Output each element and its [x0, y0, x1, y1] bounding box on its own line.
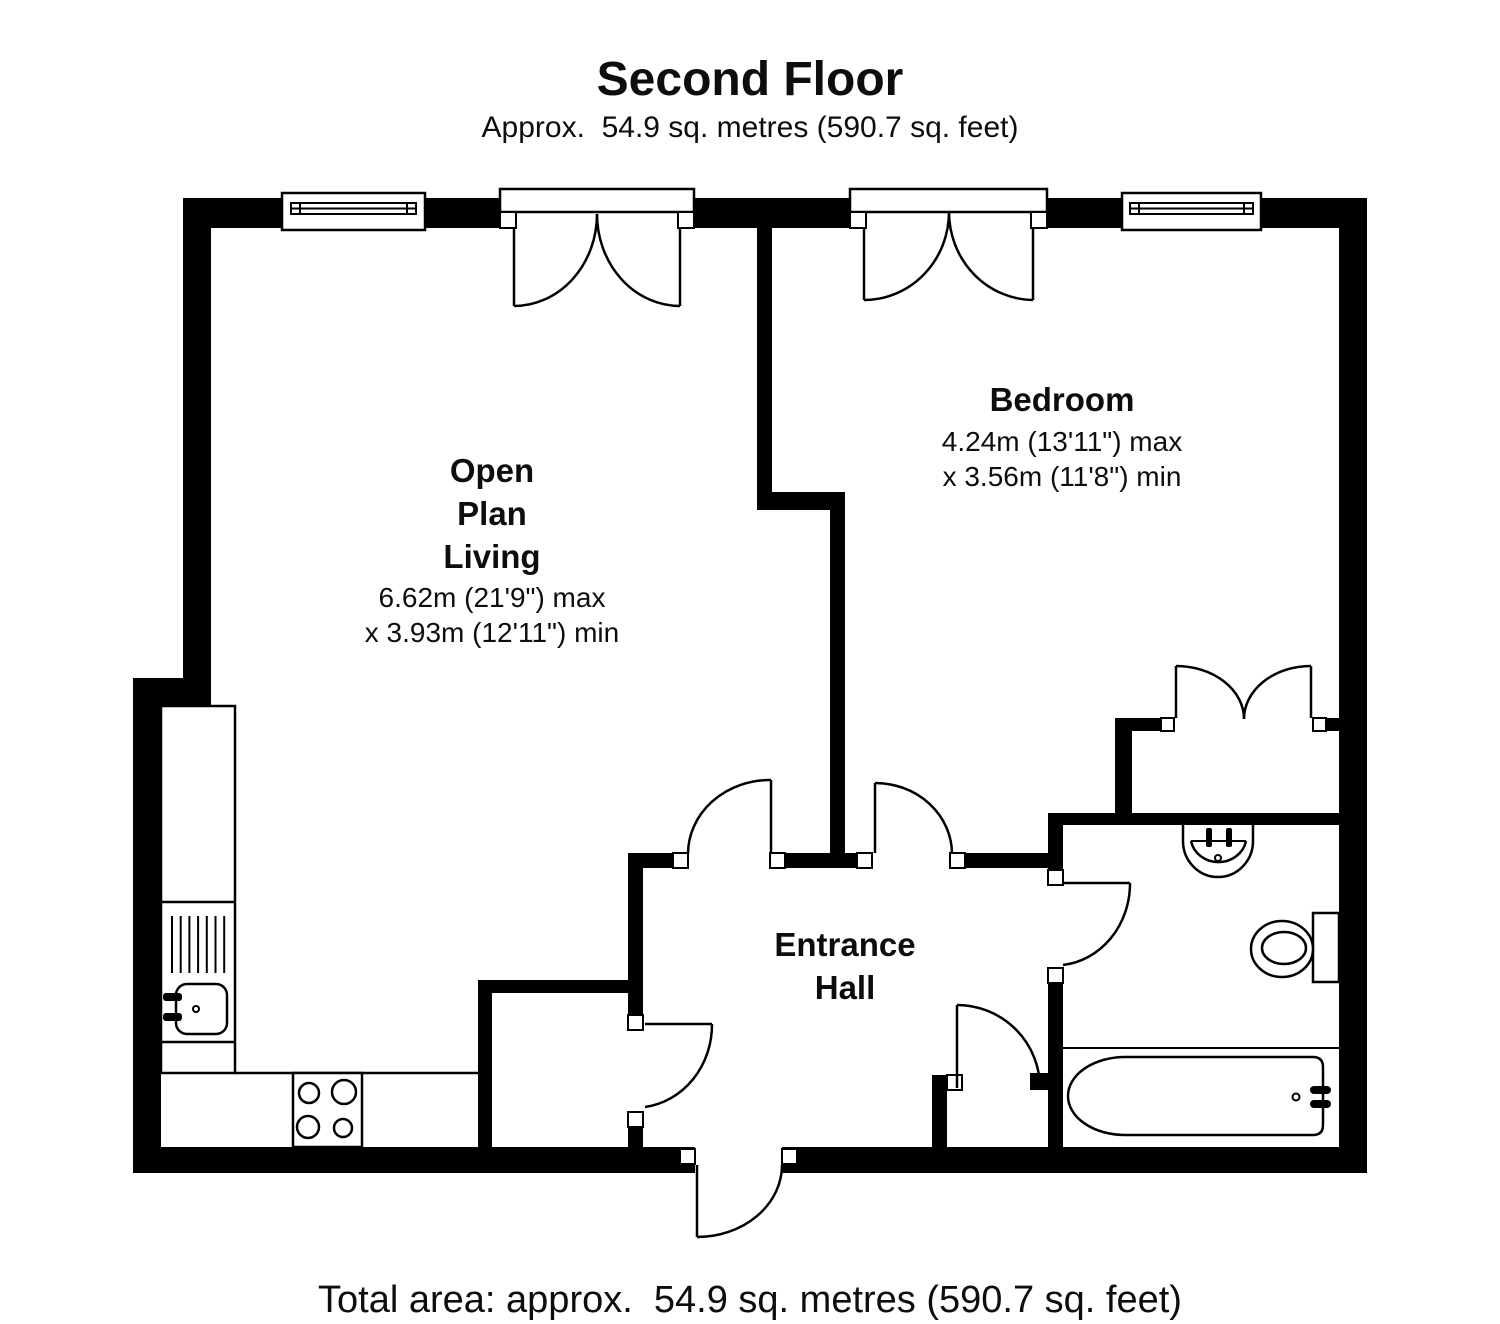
toilet — [1251, 913, 1339, 982]
living-room-label: Open Plan Living 6.62m (21'9") max x 3.9… — [365, 452, 619, 648]
floor-plan-drawing: Second Floor Approx. 54.9 sq. metres (59… — [0, 0, 1500, 1324]
living-name-line1: Open — [450, 452, 534, 489]
kitchen-sink-drainer — [172, 916, 224, 973]
bathroom-door — [1048, 870, 1130, 983]
airing-cupboard-door — [947, 1005, 1040, 1090]
bedroom-name: Bedroom — [990, 381, 1135, 418]
hall-name-line2: Hall — [815, 969, 876, 1006]
exterior-walls — [133, 198, 1367, 1173]
total-area-note: Total area: approx. 54.9 sq. metres (590… — [318, 1279, 1182, 1321]
living-french-doors — [500, 189, 694, 306]
basin — [1183, 825, 1253, 877]
hall-cupboard-door — [628, 1015, 712, 1127]
living-name-line2: Plan — [457, 495, 527, 532]
hall-name-line1: Entrance — [774, 926, 915, 963]
entrance-door — [680, 1149, 797, 1237]
living-name-line3: Living — [443, 538, 540, 575]
page-subtitle: Approx. 54.9 sq. metres (590.7 sq. feet) — [482, 111, 1019, 144]
bedroom-window — [1122, 193, 1261, 230]
kitchen-hob — [293, 1073, 362, 1147]
bedroom-dim-min: x 3.56m (11'8") min — [943, 461, 1182, 492]
bath — [1063, 1048, 1339, 1135]
bedroom-french-doors — [850, 189, 1047, 300]
living-dim-max: 6.62m (21'9") max — [379, 582, 606, 613]
living-window — [282, 193, 425, 230]
bedroom-label: Bedroom 4.24m (13'11") max x 3.56m (11'8… — [942, 381, 1182, 492]
bedroom-dim-max: 4.24m (13'11") max — [942, 426, 1182, 457]
living-dim-min: x 3.93m (12'11") min — [365, 617, 619, 648]
interior-walls — [478, 228, 1339, 1173]
living-hall-door — [673, 780, 785, 868]
bedroom-cupboard-doors — [1161, 666, 1326, 731]
bedroom-hall-door — [857, 783, 965, 868]
page-title: Second Floor — [597, 53, 904, 106]
entrance-hall-label: Entrance Hall — [774, 926, 915, 1006]
floor-plan-page: Second Floor Approx. 54.9 sq. metres (59… — [0, 0, 1500, 1324]
